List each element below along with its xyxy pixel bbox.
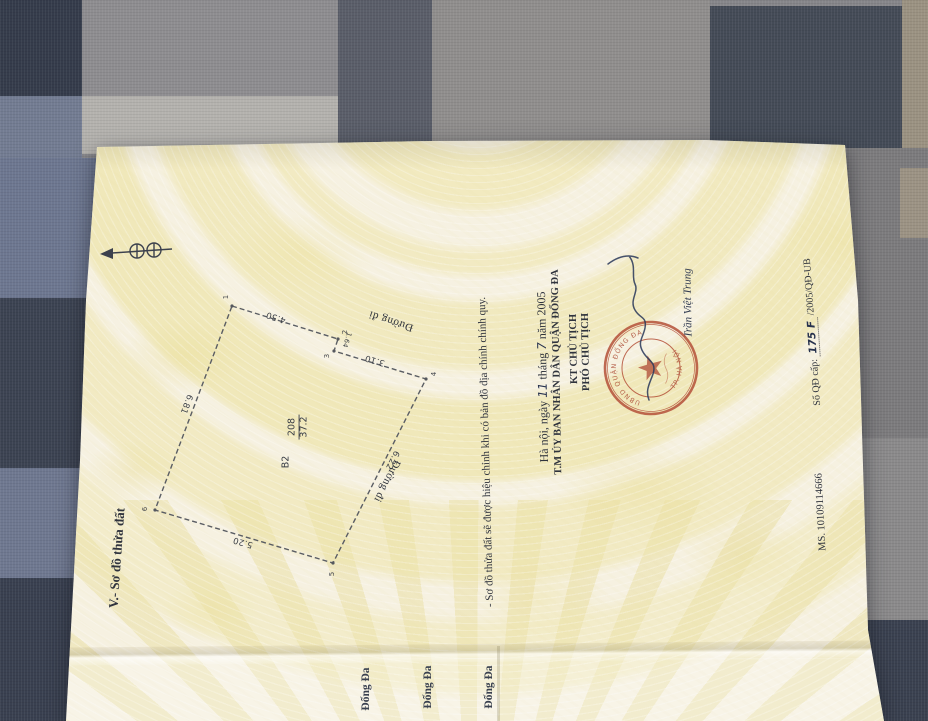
certificate-page: V.- Sơ đồ thửa đất 4.50 1.64 3.10 6.22 5… — [0, 0, 928, 721]
paper-sheet: V.- Sơ đồ thửa đất 4.50 1.64 3.10 6.22 5… — [0, 0, 928, 721]
photo-of-land-certificate: V.- Sơ đồ thửa đất 4.50 1.64 3.10 6.22 5… — [0, 0, 928, 721]
paper-edge-shading — [0, 0, 928, 721]
